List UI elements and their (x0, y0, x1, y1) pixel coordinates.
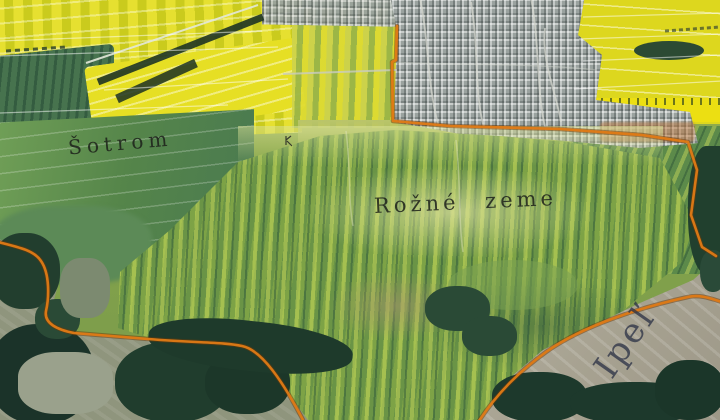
k-marker (286, 136, 292, 146)
boundary-southwest (0, 241, 303, 420)
distant-label-marks (6, 47, 66, 51)
village-streets (396, 0, 596, 131)
distant-label-marks (665, 27, 720, 31)
road-near-village (283, 70, 397, 74)
aerial-map: Šotrom Rožné zeme Ipeľ (0, 0, 720, 420)
field-boundary-lines (0, 13, 720, 113)
